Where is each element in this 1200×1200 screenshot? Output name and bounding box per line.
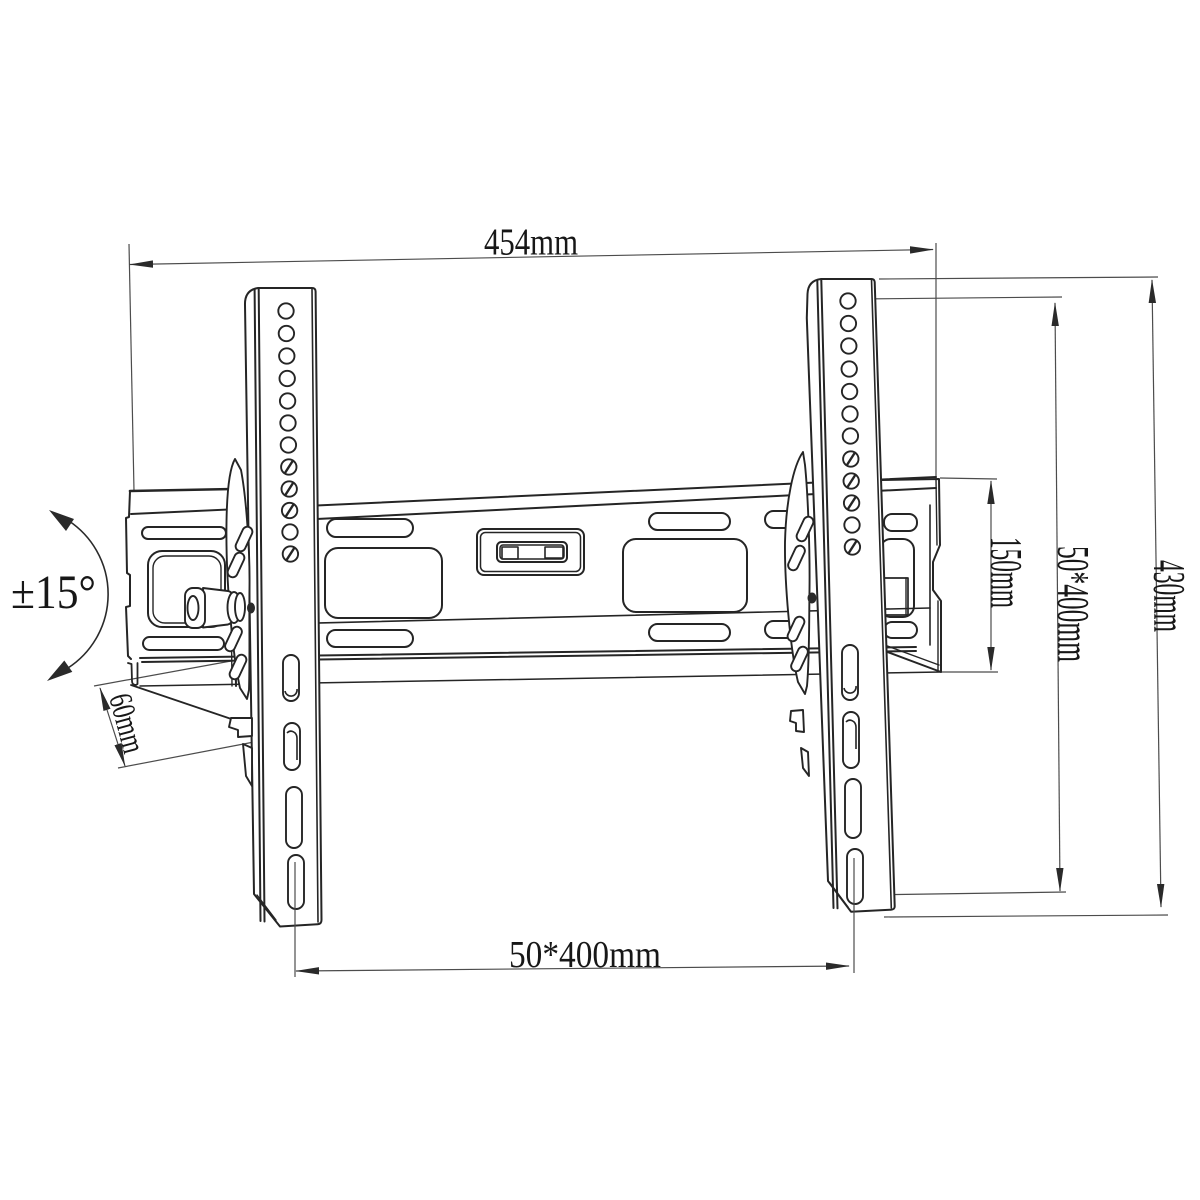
svg-text:430mm: 430mm (1144, 560, 1195, 632)
svg-text:50*400mm: 50*400mm (509, 934, 661, 976)
svg-text:±15°: ±15° (11, 566, 96, 619)
svg-text:454mm: 454mm (484, 222, 578, 264)
svg-text:150mm: 150mm (981, 537, 1032, 608)
svg-text:50*400mm: 50*400mm (1048, 546, 1099, 662)
